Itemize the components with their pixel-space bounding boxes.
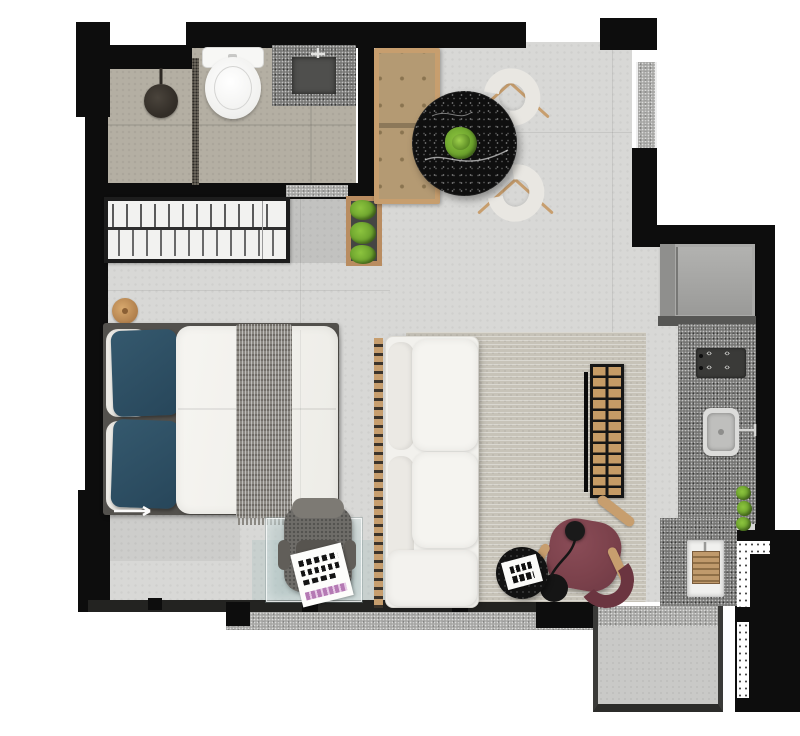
bathroom-sink xyxy=(292,57,336,94)
entry-mat xyxy=(290,197,352,263)
wall xyxy=(358,45,374,199)
sofa-seat-cushion xyxy=(412,339,478,451)
burner-mark: ‹› xyxy=(706,350,711,359)
wardrobe-divider xyxy=(262,201,263,259)
throw-blanket xyxy=(236,324,292,518)
washboard xyxy=(692,551,720,584)
neighbor-wall-section xyxy=(737,541,750,607)
refrigerator-door xyxy=(676,247,752,315)
burner-mark: ‹› xyxy=(724,364,729,373)
burner-mark: ‹› xyxy=(724,350,729,359)
wall xyxy=(632,148,657,228)
toilet-seat xyxy=(214,66,252,110)
tv-rack xyxy=(590,364,624,498)
window-counter-strip xyxy=(636,62,657,148)
floor-plan: ‹› ‹› ‹› ‹› xyxy=(0,0,800,736)
wall xyxy=(76,22,110,117)
balcony xyxy=(593,606,723,712)
tile-joint xyxy=(90,124,356,126)
plant xyxy=(350,200,376,220)
floor-lamp-head xyxy=(565,521,585,541)
herb-plant xyxy=(737,501,752,516)
sofa-back-cushion xyxy=(388,456,414,564)
wall xyxy=(90,45,192,68)
wardrobe-hangers xyxy=(112,204,280,227)
shower-head xyxy=(144,84,178,118)
sofa-back-cushion xyxy=(388,342,414,450)
neighbor-wall-section xyxy=(737,622,749,698)
wall xyxy=(755,240,775,540)
tv-panel xyxy=(584,372,588,492)
tv-rack-grid xyxy=(593,367,621,495)
teal-pillow xyxy=(110,419,179,509)
floor-joint xyxy=(90,290,390,291)
teal-pillow xyxy=(111,329,180,417)
wall xyxy=(600,18,657,50)
sofa-seat-cushion xyxy=(412,452,478,548)
shower-drain-strip xyxy=(192,58,199,185)
bathroom-door-threshold xyxy=(286,185,348,197)
plant xyxy=(350,245,376,264)
window-mullion xyxy=(226,602,250,626)
duvet-seam xyxy=(300,330,301,510)
herb-plant xyxy=(736,486,751,500)
burner-mark: ‹› xyxy=(706,364,711,373)
cooktop xyxy=(696,348,746,378)
desk-chair-back xyxy=(292,498,344,518)
cooktop-knob xyxy=(699,354,703,358)
desk-chair-armrest xyxy=(278,540,290,570)
window-mullion xyxy=(536,602,598,628)
book-print xyxy=(512,571,535,583)
plant xyxy=(350,222,376,244)
sink-drain xyxy=(718,429,724,435)
magazine-print xyxy=(305,583,348,601)
balcony-sill xyxy=(598,606,718,626)
stool-detail xyxy=(122,308,128,314)
wood-slat-divider xyxy=(374,338,383,608)
herb-plant xyxy=(736,517,751,531)
cooktop-knob xyxy=(699,366,703,370)
wardrobe-hangers xyxy=(118,230,280,256)
wall xyxy=(186,22,526,48)
window-handle xyxy=(148,598,162,610)
sofa-chaise xyxy=(387,550,477,606)
